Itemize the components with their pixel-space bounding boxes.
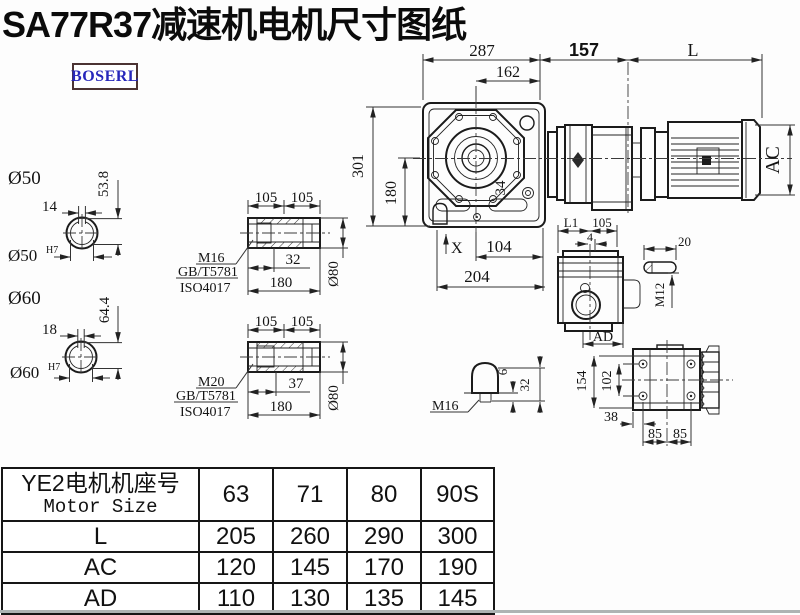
sv-105-label: 105 xyxy=(592,215,612,230)
dim-162-label: 162 xyxy=(496,64,520,81)
dim-X-label: X xyxy=(451,240,463,257)
hs1-d80-label: Ø80 xyxy=(326,261,342,287)
side-view: L1 105 4 AD xyxy=(558,215,640,348)
row-label-L: L xyxy=(2,521,199,552)
cell-L-71: 260 xyxy=(273,521,347,552)
shaft50-width-label: 14 xyxy=(42,199,58,215)
rv-85a-label: 85 xyxy=(648,427,662,442)
shaft60-label: Ø60 xyxy=(8,288,41,309)
hs1-standard2-label: ISO4017 xyxy=(180,281,231,296)
rv-38-label: 38 xyxy=(604,410,618,425)
dim-104-label: 104 xyxy=(486,237,512,256)
hs2-180-label: 180 xyxy=(270,399,293,415)
hs1-105a-label: 105 xyxy=(255,190,278,206)
table-row-AC: AC 120 145 170 190 xyxy=(2,552,494,583)
motor-size-table: YE2电机机座号 Motor Size 63 71 80 90S L 205 2… xyxy=(1,467,495,615)
sv-4-label: 4 xyxy=(587,230,593,244)
key-M12-label: M12 xyxy=(652,283,667,308)
cell-L-90s: 300 xyxy=(421,521,494,552)
hs1-180-label: 180 xyxy=(270,275,293,291)
shaft50-height-label: 53.8 xyxy=(96,171,112,197)
cell-AC-71: 145 xyxy=(273,552,347,583)
dim-301-label: 301 xyxy=(350,154,367,178)
shaft60-bore-label: Ø60 xyxy=(10,363,39,382)
table-header-row: YE2电机机座号 Motor Size 63 71 80 90S xyxy=(2,468,494,521)
shaft-section-60: Ø60 18 64.4 Ø60 H7 xyxy=(8,288,122,382)
cell-AC-80: 170 xyxy=(347,552,421,583)
cell-AC-90s: 190 xyxy=(421,552,494,583)
breather-32-label: 32 xyxy=(517,379,532,392)
dim-180v-label: 180 xyxy=(383,181,400,205)
sv-L1-label: L1 xyxy=(564,215,578,230)
shaft60-bore-tolerance: H7 xyxy=(48,362,60,373)
dim-157-label: 157 xyxy=(569,40,599,60)
fan-cowl xyxy=(742,120,760,200)
motor-flange xyxy=(641,128,655,200)
cell-AC-63: 120 xyxy=(199,552,273,583)
vent-plug-mark xyxy=(572,152,584,168)
hs2-37-label: 37 xyxy=(289,376,305,392)
rv-85b-label: 85 xyxy=(673,427,687,442)
hollow-shaft-1: 105 105 M16 GB/T5781 ISO4017 32 180 Ø80 xyxy=(176,190,348,296)
header-en: Motor Size xyxy=(3,497,198,519)
table-row-L: L 205 260 290 300 xyxy=(2,521,494,552)
rv-102-label: 102 xyxy=(600,371,615,392)
col-63: 63 xyxy=(199,468,273,521)
shaft50-bore-label: Ø50 xyxy=(8,246,37,265)
gearbox-housing xyxy=(423,103,545,227)
dim-AC-label: AC xyxy=(762,146,784,174)
col-90s: 90S xyxy=(421,468,494,521)
hs1-32-label: 32 xyxy=(286,252,301,268)
cell-L-80: 290 xyxy=(347,521,421,552)
shaft50-bore-tolerance: H7 xyxy=(46,245,58,256)
col-71: 71 xyxy=(273,468,347,521)
shaft-section-50: Ø50 14 53.8 Ø50 H7 xyxy=(8,168,122,265)
cell-L-63: 205 xyxy=(199,521,273,552)
dim-204-label: 204 xyxy=(464,267,490,286)
rv-154-label: 154 xyxy=(575,371,590,392)
row-label-AC: AC xyxy=(2,552,199,583)
hs2-d80-label: Ø80 xyxy=(326,385,342,411)
dim-287-label: 287 xyxy=(469,41,495,60)
header-motor-size: YE2电机机座号 Motor Size xyxy=(2,468,199,521)
shaft60-width-label: 18 xyxy=(42,322,57,338)
dim-L-label: L xyxy=(688,40,699,60)
rear-view: 154 102 38 85 85 xyxy=(575,340,733,446)
shaft50-label: Ø50 xyxy=(8,168,41,189)
col-80: 80 xyxy=(347,468,421,521)
dim-34-label: 34 xyxy=(493,180,509,196)
shaft60-height-label: 64.4 xyxy=(97,296,113,323)
header-cn: YE2电机机座号 xyxy=(3,470,198,496)
key-detail: 20 M12 xyxy=(644,234,691,308)
hollow-shaft-2: 105 105 M20 GB/T5781 ISO4017 37 180 Ø80 xyxy=(174,314,348,420)
sv-AD-label: AD xyxy=(593,330,613,345)
breather-detail: 6 32 M16 xyxy=(430,356,545,414)
key-20-label: 20 xyxy=(678,234,691,249)
hs2-standard2-label: ISO4017 xyxy=(180,405,231,420)
hs2-105a-label: 105 xyxy=(255,314,278,330)
main-view: 287 162 157 L 301 180 AC 34 X 104 204 xyxy=(350,40,795,291)
breather-6-label: 6 xyxy=(495,368,510,375)
hs1-105b-label: 105 xyxy=(291,190,314,206)
hs2-105b-label: 105 xyxy=(291,314,314,330)
breather-dome xyxy=(472,363,498,393)
